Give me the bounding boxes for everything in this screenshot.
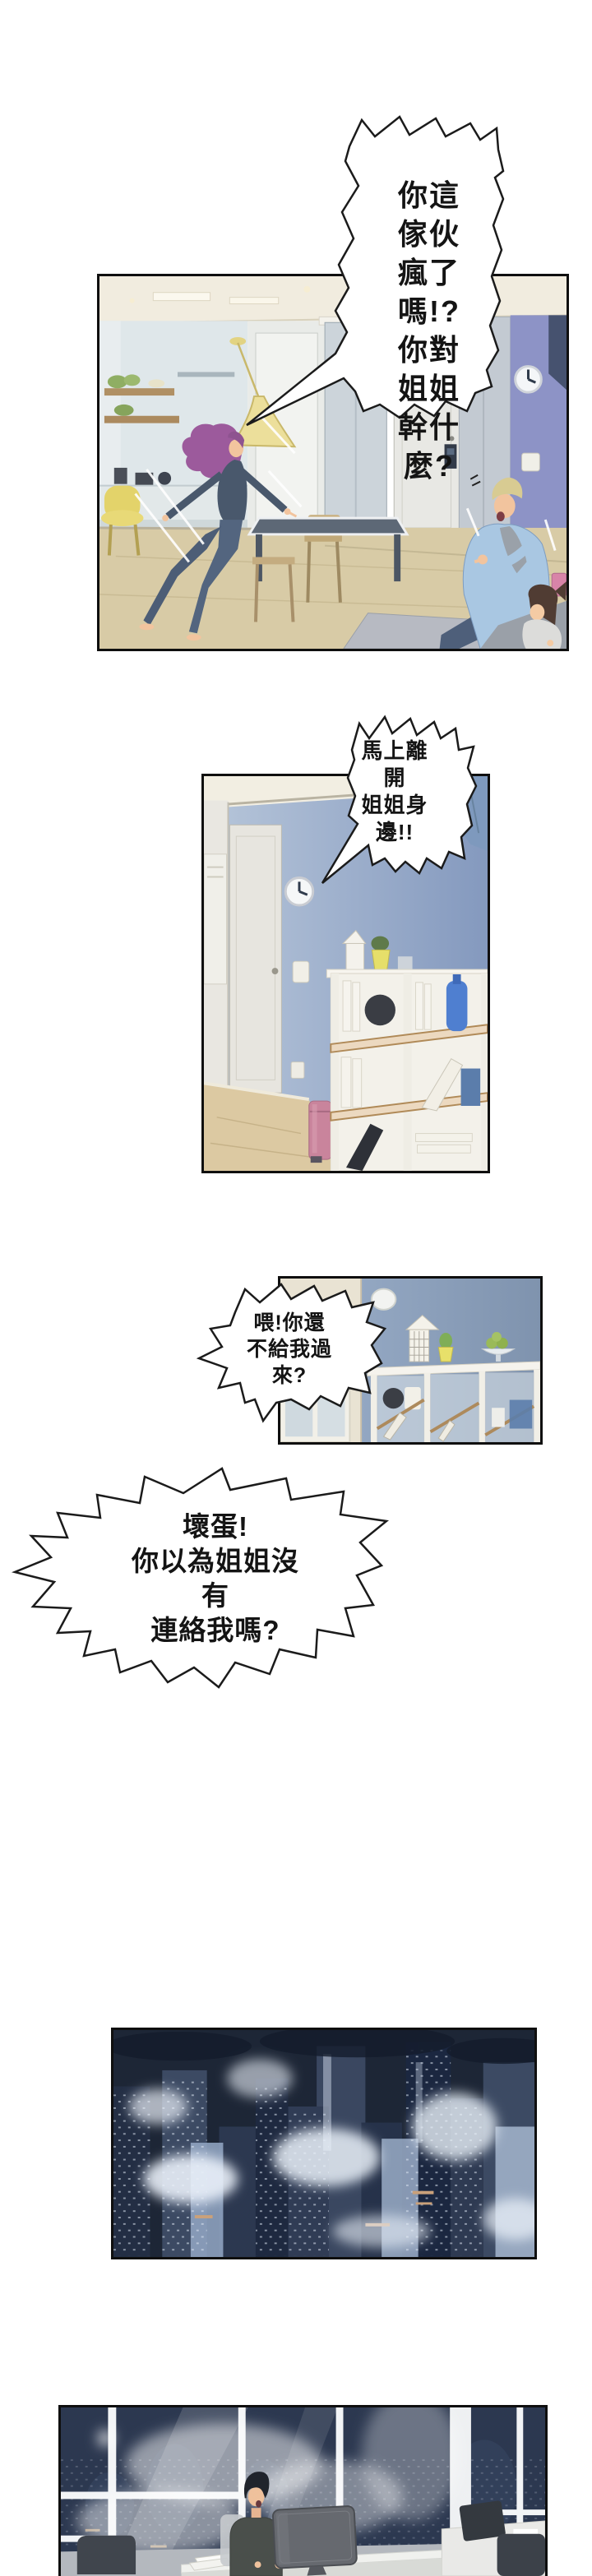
speech-bubble-4: 壞蛋! 你以為姐姐沒有 連絡我嗎? — [15, 1467, 386, 1690]
door — [229, 825, 281, 1093]
plant — [371, 937, 389, 951]
trash-bin — [309, 1101, 332, 1163]
speech-bubble-1: 你這傢伙 瘋了嗎!? 你對姐姐 幹什麼? — [238, 113, 510, 436]
comic-page: 你這傢伙 瘋了嗎!? 你對姐姐 幹什麼? — [0, 0, 592, 2576]
light-switch — [522, 453, 540, 471]
bubble-2-text: 馬上離開 姐姐身邊!! — [354, 738, 436, 846]
office-monitor — [273, 2506, 358, 2576]
cactus-pot — [438, 1333, 453, 1362]
office-chair-right — [497, 2534, 545, 2576]
bubble-1-text: 你這傢伙 瘋了嗎!? 你對姐姐 幹什麼? — [389, 176, 469, 485]
office-chair-left — [77, 2536, 136, 2574]
speech-bubble-2: 馬上離開 姐姐身邊!! — [312, 712, 477, 886]
birdhouse-decor — [346, 943, 364, 971]
panel-office-night — [58, 2405, 548, 2576]
wall-cabinet — [204, 854, 227, 984]
light-switch — [293, 961, 309, 983]
dark-bag — [459, 2500, 506, 2541]
wall-clock-icon — [516, 367, 542, 393]
bubble-3-text: 喂!你還 不給我過來? — [240, 1310, 339, 1389]
blue-bottle — [446, 981, 468, 1031]
bubble-4-text: 壞蛋! 你以為姐姐沒有 連絡我嗎? — [130, 1510, 301, 1648]
moon — [99, 2431, 113, 2446]
speech-bubble-3: 喂!你還 不給我過來? — [191, 1279, 388, 1421]
panel-night-city — [111, 2028, 537, 2259]
outlet — [291, 1062, 304, 1079]
wall-clock-icon — [285, 877, 312, 905]
